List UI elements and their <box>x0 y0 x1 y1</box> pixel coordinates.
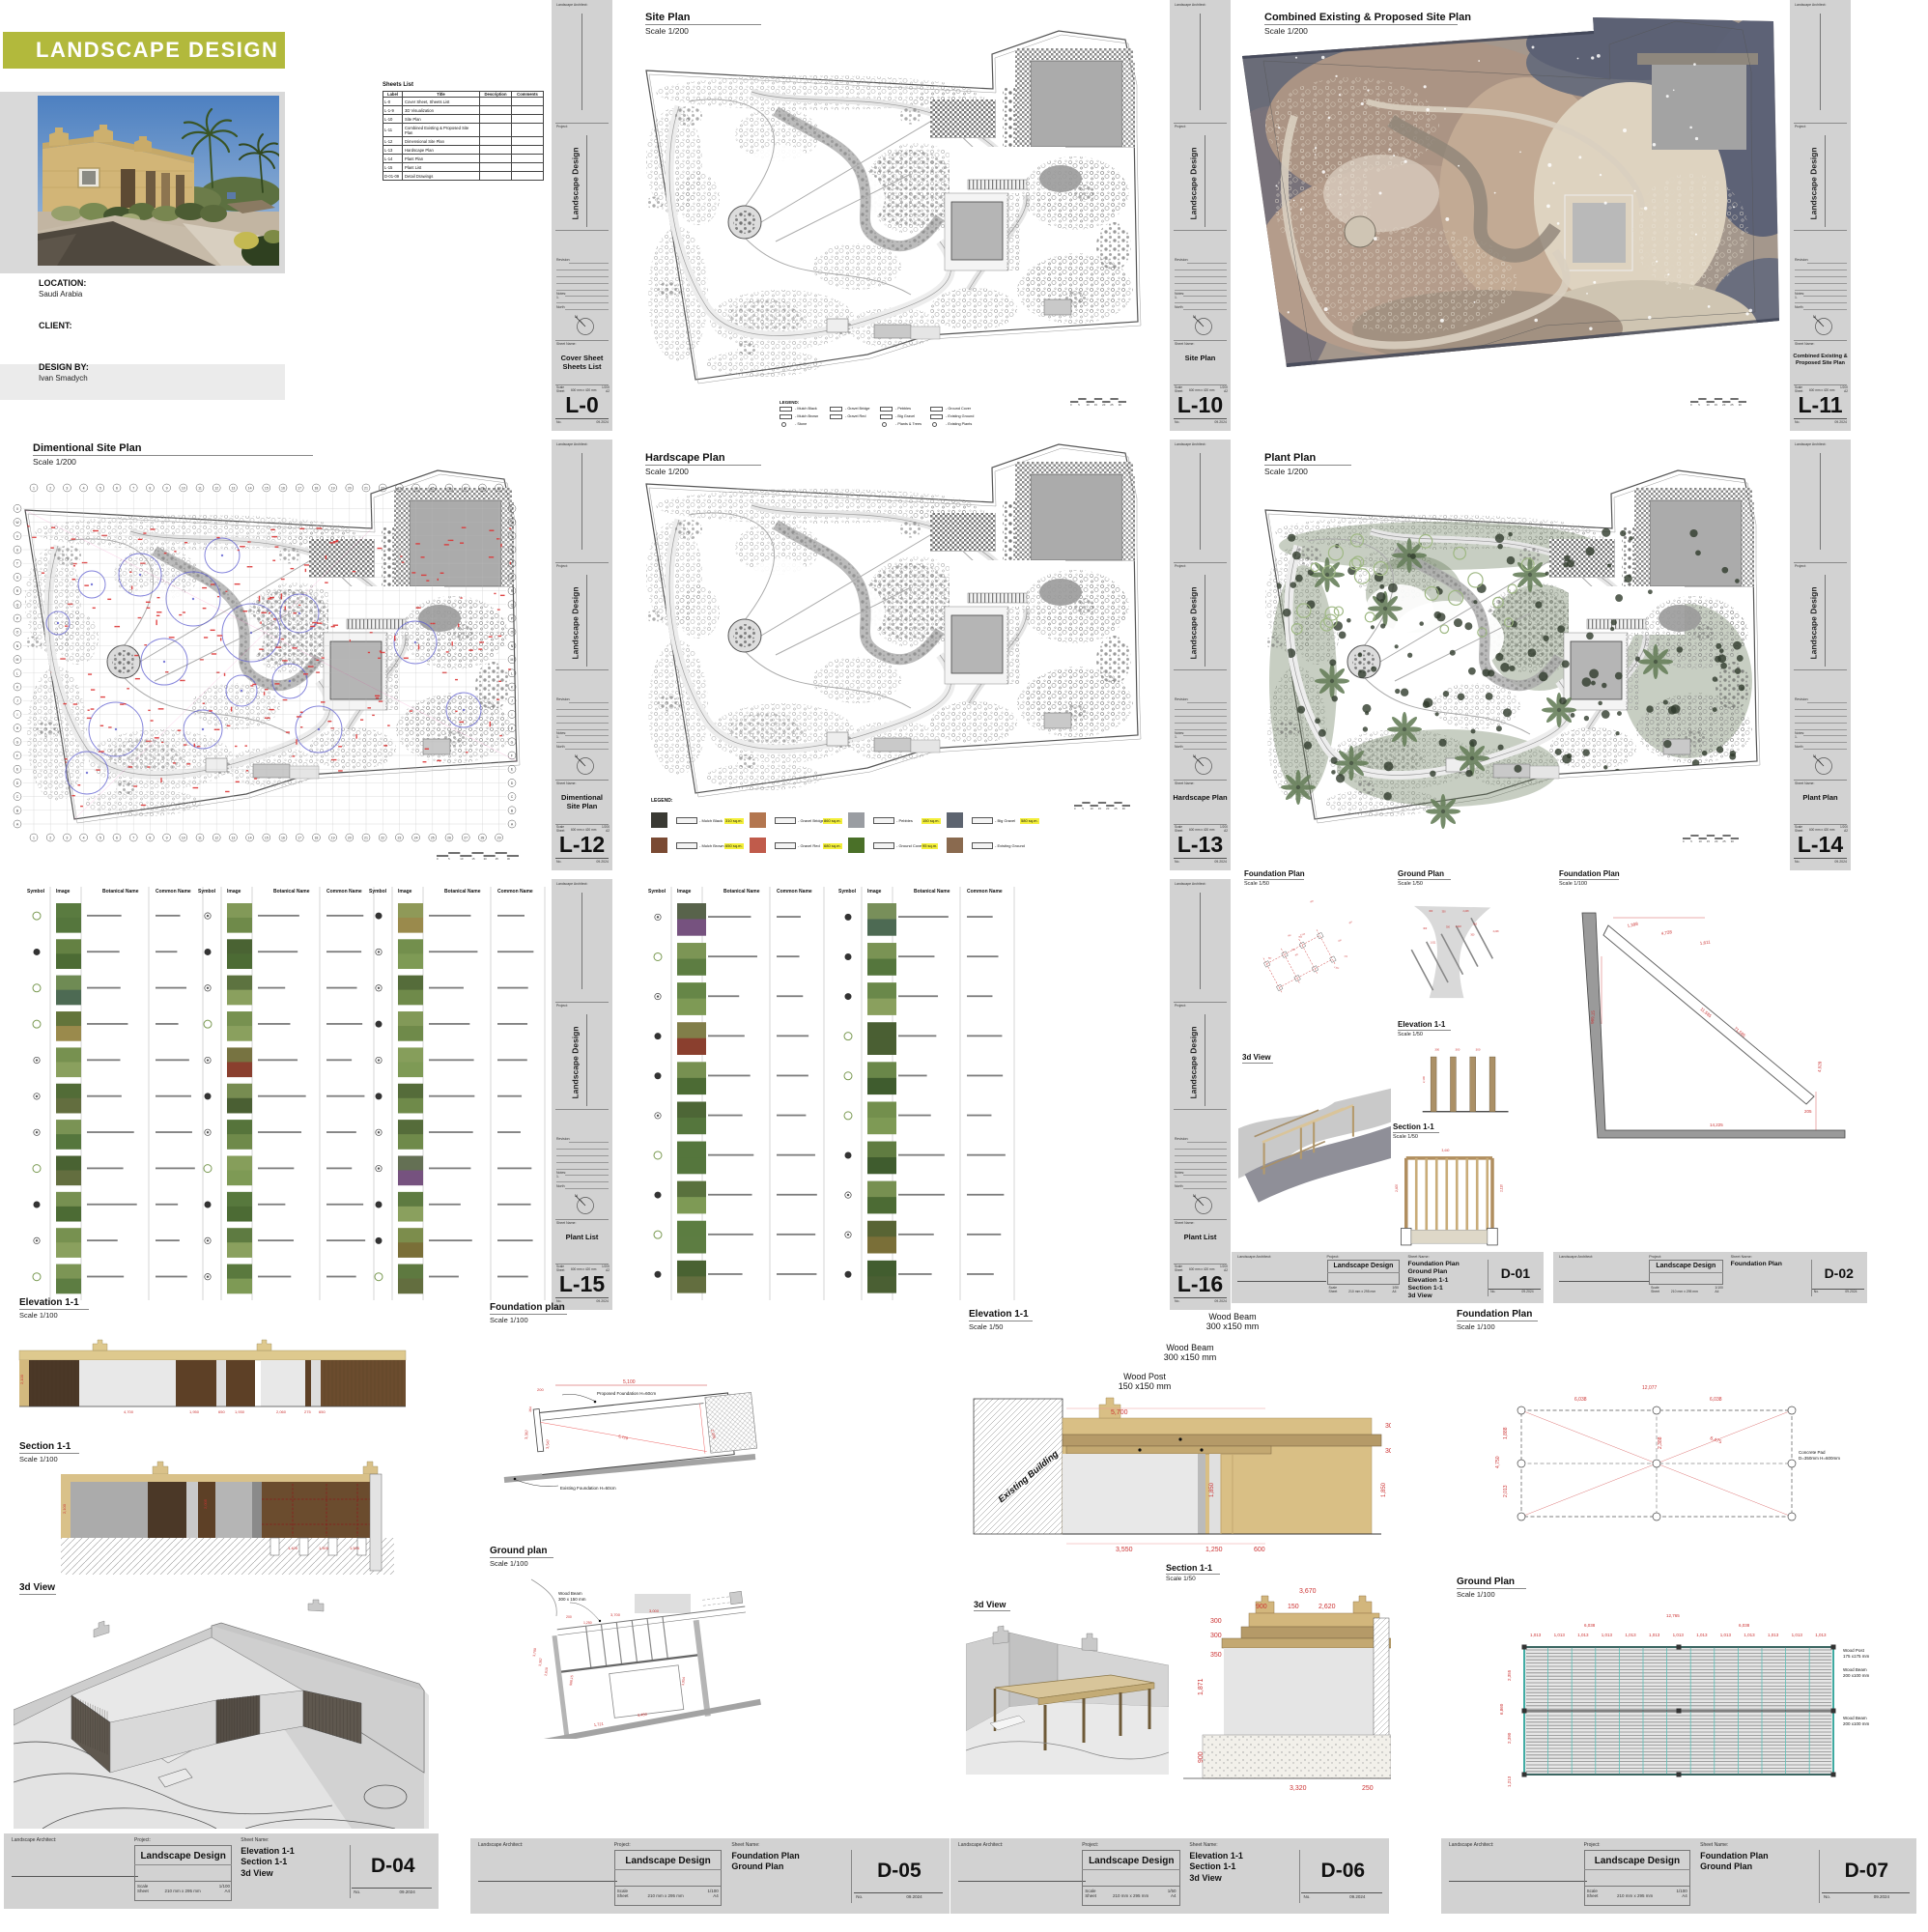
svg-text:V: V <box>511 534 514 538</box>
svg-text:1,405: 1,405 <box>288 1546 298 1550</box>
svg-text:M: M <box>16 658 19 662</box>
svg-text:T: T <box>16 562 19 566</box>
svg-text:3,367: 3,367 <box>524 1429 529 1439</box>
svg-text:1,398: 1,398 <box>1627 922 1639 928</box>
svg-text:12,765: 12,765 <box>1666 1613 1680 1618</box>
svg-text:A: A <box>511 823 514 827</box>
svg-text:25: 25 <box>1114 807 1118 810</box>
svg-text:30: 30 <box>507 857 511 860</box>
svg-text:1,013: 1,013 <box>1696 1633 1708 1637</box>
svg-text:N: N <box>1193 1193 1196 1198</box>
svg-text:300: 300 <box>1470 933 1475 936</box>
svg-text:Q: Q <box>16 603 19 607</box>
svg-text:19: 19 <box>331 837 335 840</box>
svg-text:23: 23 <box>397 487 401 491</box>
svg-text:4,700: 4,700 <box>124 1409 134 1414</box>
svg-text:R: R <box>16 589 19 593</box>
svg-text:1,850: 1,850 <box>1209 1482 1215 1497</box>
svg-text:164: 164 <box>528 1406 532 1412</box>
svg-text:K: K <box>16 686 19 690</box>
svg-text:0: 0 <box>1683 839 1685 842</box>
svg-text:2,500: 2,500 <box>1300 933 1306 936</box>
svg-text:1,250: 1,250 <box>1205 1547 1223 1553</box>
svg-text:4,750: 4,750 <box>1495 1456 1501 1468</box>
svg-text:5: 5 <box>1690 839 1692 842</box>
svg-text:25: 25 <box>1730 403 1734 406</box>
svg-text:275: 275 <box>304 1409 311 1414</box>
svg-text:11: 11 <box>198 837 202 840</box>
svg-text:5: 5 <box>99 487 101 491</box>
svg-text:14: 14 <box>248 837 252 840</box>
svg-text:1,505: 1,505 <box>350 1546 360 1550</box>
svg-text:6,475: 6,475 <box>1709 1435 1722 1445</box>
svg-text:J: J <box>16 699 18 703</box>
svg-text:N: N <box>1193 753 1196 758</box>
svg-text:G: G <box>511 740 514 744</box>
svg-text:1,013: 1,013 <box>1768 1633 1779 1637</box>
svg-text:16: 16 <box>281 837 285 840</box>
svg-text:4: 4 <box>83 487 85 491</box>
svg-text:1,013: 1,013 <box>1577 1633 1589 1637</box>
svg-text:O: O <box>511 631 514 635</box>
svg-text:9: 9 <box>166 837 168 840</box>
svg-text:6: 6 <box>116 487 118 491</box>
svg-text:2,060: 2,060 <box>276 1409 287 1414</box>
svg-text:4,928: 4,928 <box>1817 1061 1823 1072</box>
svg-text:5: 5 <box>1082 807 1084 810</box>
svg-text:Image: Image <box>398 889 412 895</box>
svg-text:4: 4 <box>83 837 85 840</box>
svg-text:2,388: 2,388 <box>1658 1436 1663 1449</box>
svg-text:X: X <box>16 507 19 511</box>
svg-text:X: X <box>511 507 514 511</box>
svg-text:22: 22 <box>381 487 384 491</box>
svg-text:25: 25 <box>431 487 435 491</box>
svg-text:C: C <box>16 795 19 799</box>
svg-text:27: 27 <box>464 487 468 491</box>
svg-text:12: 12 <box>214 837 218 840</box>
svg-text:7: 7 <box>132 487 134 491</box>
svg-text:29: 29 <box>497 837 501 840</box>
svg-text:3,550: 3,550 <box>1116 1547 1133 1553</box>
svg-text:F: F <box>16 754 18 758</box>
svg-text:900: 900 <box>1256 1604 1267 1610</box>
svg-text:H: H <box>16 726 19 730</box>
svg-text:J: J <box>511 699 513 703</box>
svg-text:1,505: 1,505 <box>319 1546 329 1550</box>
svg-text:16: 16 <box>281 487 285 491</box>
svg-text:Existing Foundation H=60cm: Existing Foundation H=60cm <box>560 1486 616 1491</box>
svg-text:950: 950 <box>1298 936 1302 938</box>
svg-text:9: 9 <box>166 487 168 491</box>
svg-text:D: D <box>511 781 514 785</box>
svg-text:30: 30 <box>1731 839 1735 842</box>
svg-text:1,013: 1,013 <box>1625 1633 1636 1637</box>
svg-text:Wood Post: Wood Post <box>1843 1648 1865 1653</box>
svg-text:25: 25 <box>496 857 499 860</box>
svg-text:Symbol: Symbol <box>369 889 387 895</box>
svg-text:300: 300 <box>1345 956 1348 958</box>
svg-text:V: V <box>16 534 19 538</box>
svg-text:600: 600 <box>1254 1547 1265 1553</box>
svg-text:3,440: 3,440 <box>1442 1149 1450 1152</box>
svg-text:S: S <box>16 576 19 580</box>
svg-text:D: D <box>16 781 19 785</box>
svg-text:950: 950 <box>1349 921 1354 924</box>
svg-text:650: 650 <box>319 1409 326 1414</box>
svg-text:Image: Image <box>677 889 692 895</box>
svg-text:25: 25 <box>431 837 435 840</box>
svg-text:24: 24 <box>414 487 418 491</box>
svg-text:1,013: 1,013 <box>1815 1633 1827 1637</box>
svg-text:12: 12 <box>214 487 218 491</box>
svg-text:26: 26 <box>447 487 451 491</box>
svg-text:S: S <box>511 576 514 580</box>
svg-text:8: 8 <box>149 487 151 491</box>
svg-text:Concrete Pad: Concrete Pad <box>1799 1450 1826 1455</box>
svg-text:13: 13 <box>231 837 235 840</box>
svg-text:300: 300 <box>1210 1633 1222 1639</box>
svg-text:3,954: 3,954 <box>681 1677 686 1686</box>
svg-text:300: 300 <box>1473 923 1478 925</box>
svg-text:13: 13 <box>231 487 235 491</box>
svg-text:15: 15 <box>1707 839 1711 842</box>
svg-text:1,013: 1,013 <box>1649 1633 1660 1637</box>
svg-text:N: N <box>1193 314 1196 319</box>
svg-text:6,038: 6,038 <box>1739 1623 1750 1628</box>
svg-text:Symbol: Symbol <box>198 889 216 895</box>
svg-text:30: 30 <box>1122 807 1126 810</box>
svg-text:D=350mm H=600mm: D=350mm H=600mm <box>1799 1456 1840 1461</box>
svg-text:0: 0 <box>1690 403 1692 406</box>
svg-text:950: 950 <box>1288 935 1292 938</box>
svg-text:2,610: 2,610 <box>544 1667 549 1676</box>
svg-text:300: 300 <box>1385 1448 1391 1455</box>
svg-text:6,038: 6,038 <box>1710 1397 1722 1403</box>
svg-text:25: 25 <box>1110 403 1114 406</box>
svg-text:5: 5 <box>99 837 101 840</box>
svg-text:20: 20 <box>348 487 352 491</box>
svg-text:200: 200 <box>537 1387 544 1392</box>
svg-text:20: 20 <box>348 837 352 840</box>
svg-text:17: 17 <box>298 837 301 840</box>
svg-text:28: 28 <box>480 487 484 491</box>
svg-text:10: 10 <box>1087 403 1091 406</box>
svg-text:950: 950 <box>1291 950 1295 952</box>
svg-text:2,248: 2,248 <box>1463 910 1470 913</box>
svg-text:5: 5 <box>1698 403 1700 406</box>
svg-text:W: W <box>510 521 514 525</box>
svg-text:Symbol: Symbol <box>27 889 45 895</box>
svg-text:N: N <box>575 753 578 758</box>
svg-text:14,225: 14,225 <box>1710 1122 1723 1127</box>
svg-text:2,100: 2,100 <box>62 1503 67 1514</box>
svg-text:950: 950 <box>1268 957 1273 959</box>
svg-text:2,620: 2,620 <box>1318 1604 1336 1610</box>
svg-text:Symbol: Symbol <box>838 889 857 895</box>
svg-text:300: 300 <box>1330 896 1335 897</box>
svg-text:300: 300 <box>1295 953 1300 956</box>
svg-text:21: 21 <box>364 837 368 840</box>
svg-text:300: 300 <box>1446 926 1451 929</box>
svg-text:G: G <box>16 740 19 744</box>
svg-text:3: 3 <box>66 487 68 491</box>
svg-text:1,013: 1,013 <box>1554 1633 1566 1637</box>
svg-text:300: 300 <box>1476 1047 1481 1051</box>
svg-text:Q: Q <box>511 603 514 607</box>
svg-text:4,728: 4,728 <box>1660 929 1672 936</box>
svg-text:5,700: 5,700 <box>1111 1409 1128 1416</box>
svg-text:30: 30 <box>1119 403 1122 406</box>
svg-text:2,110: 2,110 <box>1500 1184 1504 1192</box>
svg-text:20: 20 <box>1102 403 1106 406</box>
svg-text:Common Name: Common Name <box>326 889 362 895</box>
svg-text:6,860: 6,860 <box>1499 1703 1504 1715</box>
svg-text:Botanical Name: Botanical Name <box>273 889 310 895</box>
svg-text:1,930: 1,930 <box>235 1409 245 1414</box>
svg-text:B: B <box>511 809 514 812</box>
svg-text:950: 950 <box>1310 900 1315 903</box>
svg-text:P: P <box>16 617 19 621</box>
svg-text:2,248: 2,248 <box>1493 930 1500 933</box>
svg-text:27: 27 <box>464 837 468 840</box>
svg-text:3: 3 <box>66 837 68 840</box>
svg-text:Common Name: Common Name <box>777 889 812 895</box>
svg-text:10: 10 <box>1091 807 1094 810</box>
svg-text:20: 20 <box>1715 839 1718 842</box>
svg-text:19: 19 <box>331 487 335 491</box>
svg-text:3,367: 3,367 <box>538 1658 543 1666</box>
svg-text:0: 0 <box>437 857 439 860</box>
svg-text:14: 14 <box>248 487 252 491</box>
svg-text:Image: Image <box>56 889 71 895</box>
svg-text:300: 300 <box>1423 927 1428 930</box>
svg-text:K: K <box>511 686 514 690</box>
svg-text:200: 200 <box>566 1615 572 1619</box>
svg-text:5: 5 <box>1078 403 1080 406</box>
svg-text:L: L <box>16 671 18 675</box>
svg-text:O: O <box>16 631 19 635</box>
svg-text:26: 26 <box>447 837 451 840</box>
svg-text:10: 10 <box>182 487 185 491</box>
svg-text:Common Name: Common Name <box>497 889 533 895</box>
svg-text:15: 15 <box>265 487 269 491</box>
svg-text:6,038: 6,038 <box>1574 1397 1587 1403</box>
svg-text:H: H <box>511 726 514 730</box>
svg-text:A: A <box>16 823 19 827</box>
svg-text:3,000: 3,000 <box>649 1608 660 1613</box>
svg-text:175 x175 mm: 175 x175 mm <box>1843 1654 1870 1659</box>
svg-text:I: I <box>17 713 18 717</box>
svg-text:300: 300 <box>1429 910 1433 913</box>
svg-text:W: W <box>15 521 19 525</box>
svg-text:5: 5 <box>448 857 450 860</box>
svg-text:U: U <box>16 549 19 553</box>
svg-text:Common Name: Common Name <box>156 889 191 895</box>
svg-text:Botanical Name: Botanical Name <box>444 889 481 895</box>
svg-text:2,100: 2,100 <box>1422 1076 1426 1084</box>
svg-text:350: 350 <box>1210 1652 1222 1659</box>
svg-text:23: 23 <box>397 837 401 840</box>
svg-text:N: N <box>1813 753 1816 758</box>
svg-text:15: 15 <box>265 837 269 840</box>
svg-text:1,871: 1,871 <box>1198 1678 1205 1695</box>
svg-text:C: C <box>511 795 514 799</box>
svg-text:200 x100 mm: 200 x100 mm <box>1843 1673 1870 1678</box>
svg-text:E: E <box>511 768 514 772</box>
svg-text:Botanical Name: Botanical Name <box>914 889 950 895</box>
svg-text:3,460: 3,460 <box>638 1712 648 1718</box>
svg-text:5,100: 5,100 <box>623 1379 636 1385</box>
svg-text:10: 10 <box>1707 403 1711 406</box>
svg-text:Wood Beam: Wood Beam <box>558 1591 582 1596</box>
svg-text:1,611: 1,611 <box>1699 939 1711 946</box>
svg-text:Common Name: Common Name <box>967 889 1003 895</box>
svg-text:969,15: 969,15 <box>1590 1010 1596 1025</box>
svg-text:1,950: 1,950 <box>189 1409 200 1414</box>
svg-text:Image: Image <box>867 889 882 895</box>
svg-text:150: 150 <box>1288 1604 1299 1610</box>
svg-text:300: 300 <box>1338 939 1343 943</box>
svg-text:1,888: 1,888 <box>1503 1427 1509 1439</box>
svg-text:1: 1 <box>33 837 35 840</box>
svg-text:29: 29 <box>497 487 501 491</box>
svg-text:N: N <box>575 314 578 319</box>
svg-text:3,700: 3,700 <box>532 1648 537 1657</box>
svg-text:2,390: 2,390 <box>1507 1732 1512 1744</box>
svg-text:2,500: 2,500 <box>1334 967 1340 970</box>
svg-text:3,320: 3,320 <box>1290 1785 1307 1792</box>
svg-text:2,400: 2,400 <box>1395 1184 1399 1192</box>
svg-text:15: 15 <box>1094 403 1098 406</box>
svg-text:30: 30 <box>1739 403 1743 406</box>
svg-text:3,670: 3,670 <box>1299 1588 1317 1595</box>
svg-text:1,013: 1,013 <box>1744 1633 1755 1637</box>
svg-text:1,013: 1,013 <box>1720 1633 1732 1637</box>
svg-text:17: 17 <box>298 487 301 491</box>
svg-text:L: L <box>511 671 513 675</box>
svg-text:1,013: 1,013 <box>1673 1633 1685 1637</box>
svg-text:15: 15 <box>1715 403 1718 406</box>
svg-text:E: E <box>16 768 19 772</box>
svg-text:300: 300 <box>1210 1618 1222 1625</box>
svg-text:1,013: 1,013 <box>1602 1633 1613 1637</box>
svg-text:3,700: 3,700 <box>610 1612 621 1617</box>
svg-text:1,850: 1,850 <box>1381 1482 1387 1497</box>
svg-text:I: I <box>512 713 513 717</box>
svg-text:300: 300 <box>1434 1047 1439 1051</box>
svg-text:0: 0 <box>1070 403 1072 406</box>
svg-text:U: U <box>511 549 514 553</box>
svg-text:1,011: 1,011 <box>1431 942 1436 945</box>
svg-text:2,355: 2,355 <box>1507 1669 1512 1681</box>
svg-text:15: 15 <box>471 857 475 860</box>
svg-text:8: 8 <box>149 837 151 840</box>
svg-text:Botanical Name: Botanical Name <box>723 889 760 895</box>
svg-text:7: 7 <box>132 837 134 840</box>
svg-text:200 x100 mm: 200 x100 mm <box>1843 1721 1870 1726</box>
svg-text:Botanical Name: Botanical Name <box>102 889 139 895</box>
svg-text:18: 18 <box>314 837 318 840</box>
svg-text:6,038: 6,038 <box>1584 1623 1596 1628</box>
svg-text:1,013: 1,013 <box>1530 1633 1542 1637</box>
svg-text:N: N <box>1813 314 1816 319</box>
svg-text:1,013: 1,013 <box>1792 1633 1803 1637</box>
svg-text:10: 10 <box>182 837 185 840</box>
svg-text:Image: Image <box>227 889 241 895</box>
svg-text:20: 20 <box>1106 807 1110 810</box>
svg-text:2,100: 2,100 <box>19 1374 24 1384</box>
svg-text:2: 2 <box>49 837 51 840</box>
svg-text:24: 24 <box>414 837 418 840</box>
svg-text:300: 300 <box>1456 1047 1460 1051</box>
svg-text:2,005: 2,005 <box>203 1498 208 1509</box>
svg-text:11: 11 <box>198 487 202 491</box>
svg-text:2,248: 2,248 <box>1456 925 1462 928</box>
svg-text:Proposed Foundation H=60cm: Proposed Foundation H=60cm <box>597 1391 656 1396</box>
svg-text:1,250: 1,250 <box>583 1621 592 1625</box>
svg-text:20: 20 <box>1722 403 1726 406</box>
svg-text:25: 25 <box>1722 839 1726 842</box>
svg-text:3,547: 3,547 <box>545 1438 551 1449</box>
svg-text:M: M <box>511 658 514 662</box>
svg-text:22: 22 <box>381 837 384 840</box>
svg-text:1,721: 1,721 <box>594 1721 605 1727</box>
svg-text:10: 10 <box>460 857 464 860</box>
svg-text:2,013: 2,013 <box>1503 1485 1509 1497</box>
svg-text:18: 18 <box>314 487 318 491</box>
svg-text:6: 6 <box>116 837 118 840</box>
svg-text:0: 0 <box>1074 807 1076 810</box>
svg-text:650: 650 <box>218 1409 225 1414</box>
svg-text:908,15: 908,15 <box>569 1675 574 1686</box>
svg-text:28: 28 <box>480 837 484 840</box>
svg-text:F: F <box>511 754 513 758</box>
svg-text:10: 10 <box>1699 839 1703 842</box>
svg-text:12,077: 12,077 <box>1642 1385 1658 1391</box>
svg-text:900: 900 <box>1198 1751 1205 1763</box>
svg-text:300 x 150 mm: 300 x 150 mm <box>558 1597 586 1602</box>
svg-text:205: 205 <box>1804 1109 1812 1114</box>
svg-text:P: P <box>511 617 514 621</box>
svg-text:Symbol: Symbol <box>648 889 666 895</box>
svg-text:20: 20 <box>484 857 488 860</box>
svg-text:1,213: 1,213 <box>1507 1776 1512 1787</box>
svg-text:15: 15 <box>1098 807 1102 810</box>
svg-text:300: 300 <box>1385 1423 1391 1430</box>
svg-text:250: 250 <box>1362 1785 1374 1792</box>
svg-text:N: N <box>511 644 514 648</box>
svg-text:2: 2 <box>49 487 51 491</box>
svg-text:B: B <box>16 809 19 812</box>
svg-text:N: N <box>16 644 19 648</box>
svg-text:21: 21 <box>364 487 368 491</box>
svg-text:Wood Beam: Wood Beam <box>1843 1667 1867 1672</box>
svg-text:R: R <box>511 589 514 593</box>
svg-text:T: T <box>511 562 514 566</box>
svg-text:1: 1 <box>33 487 35 491</box>
svg-text:300: 300 <box>1442 910 1447 913</box>
svg-text:Wood Beam: Wood Beam <box>1843 1716 1867 1720</box>
svg-text:N: N <box>575 1193 578 1198</box>
